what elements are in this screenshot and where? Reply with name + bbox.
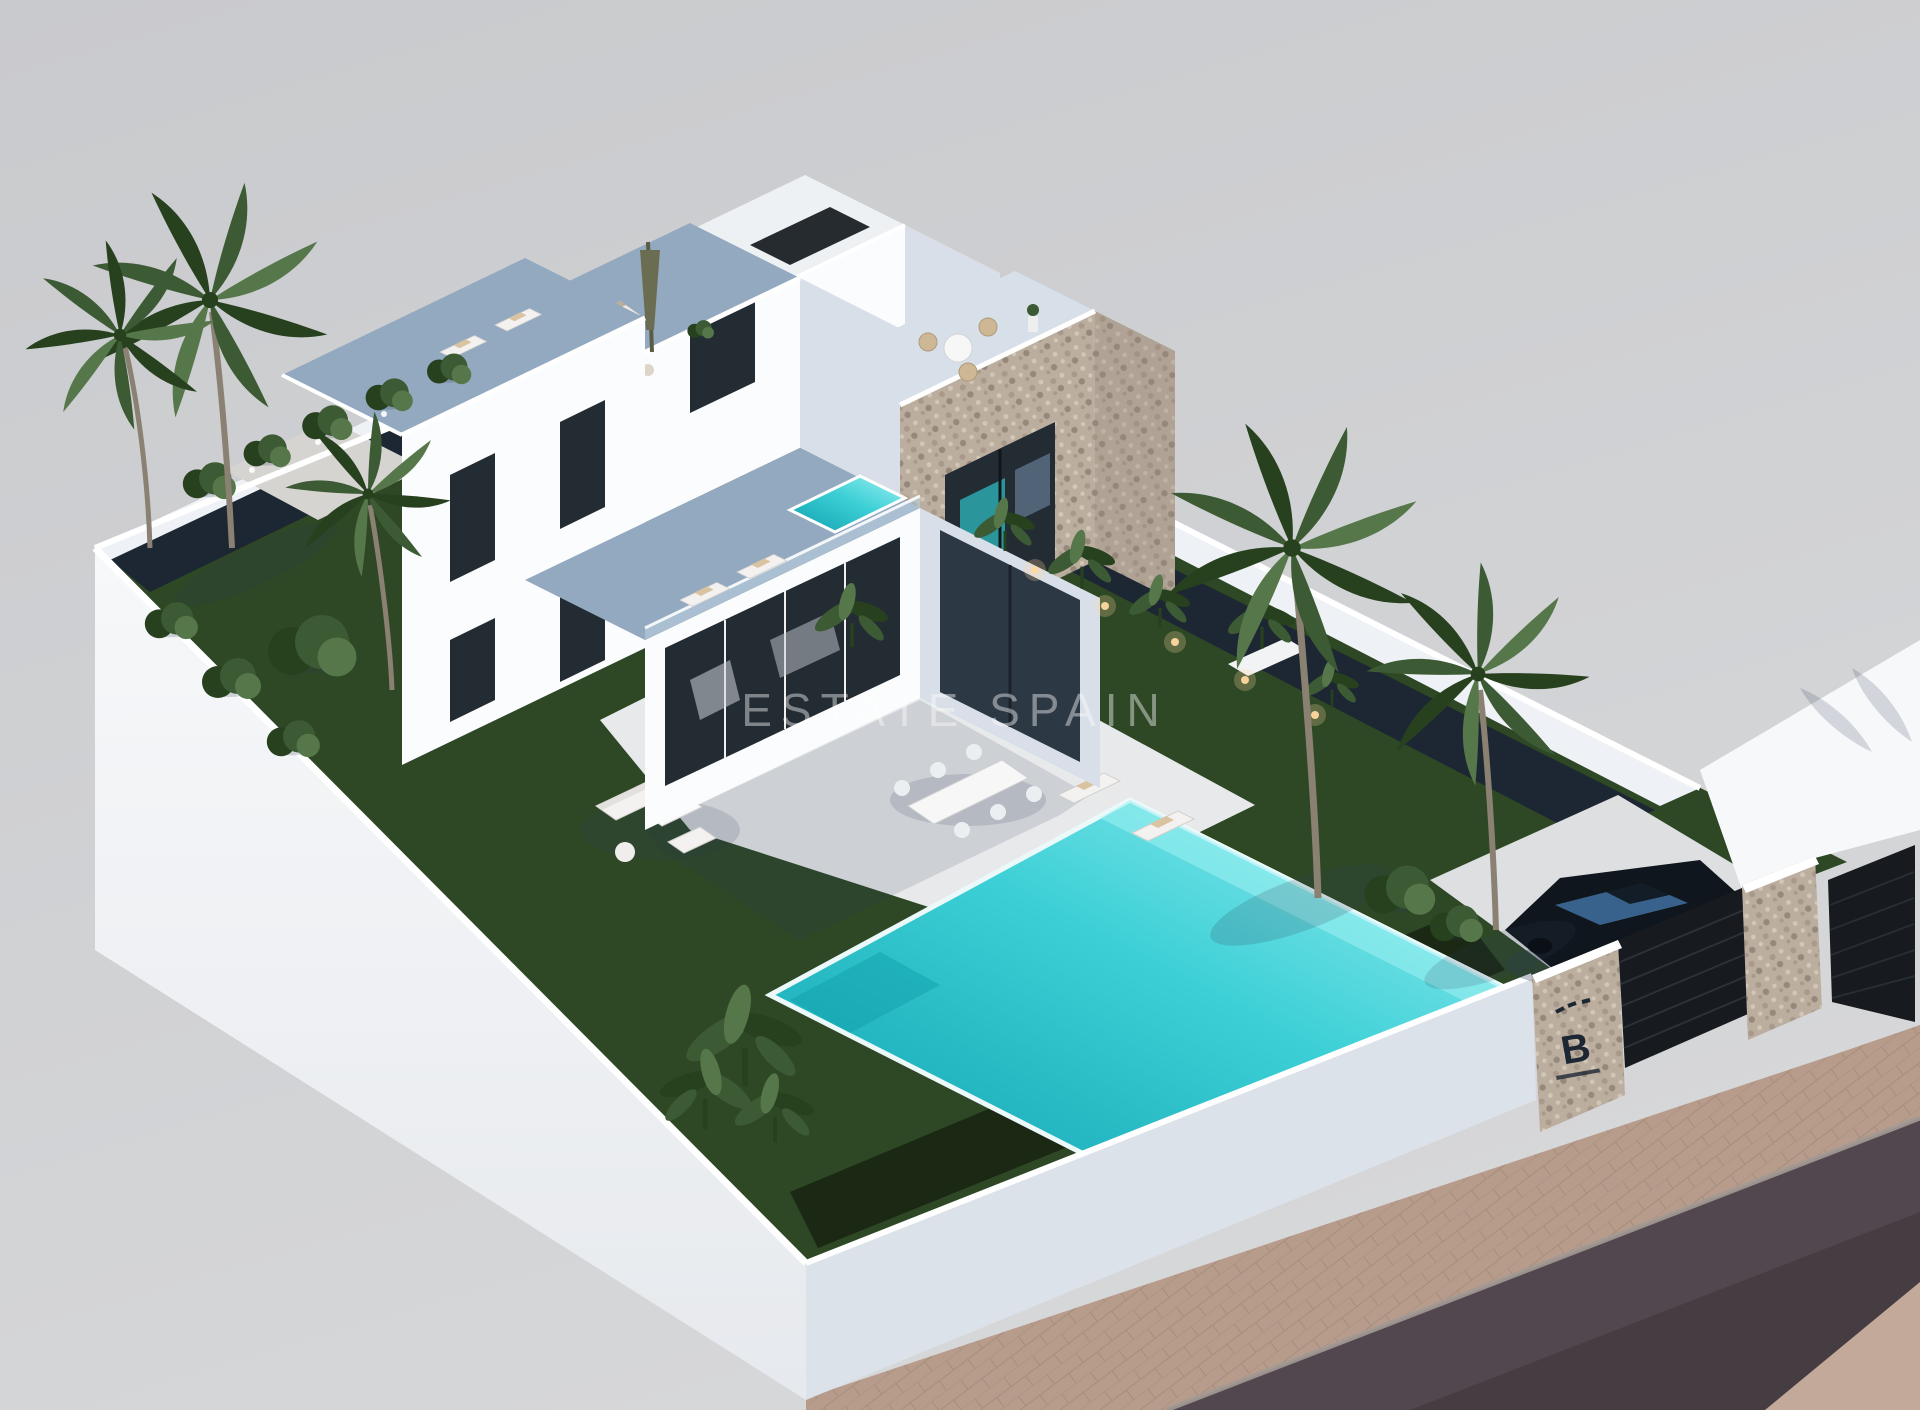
wicker-chair <box>979 318 997 336</box>
dining-chair <box>954 822 970 838</box>
dining-chair <box>894 780 910 796</box>
dining-chair <box>930 762 946 778</box>
garden-uplight <box>315 439 321 445</box>
pouf <box>615 842 635 862</box>
dining-chair <box>1026 786 1042 802</box>
entrance-pillar-right <box>1742 856 1822 1040</box>
watermark-text: ESTATE SPAIN <box>741 684 1169 736</box>
render-canvas: B <box>0 0 1920 1410</box>
dining-chair <box>966 744 982 760</box>
wicker-chair <box>919 333 937 351</box>
garden-uplight <box>381 411 387 417</box>
wicker-chair <box>959 363 977 381</box>
dining-chair <box>990 804 1006 820</box>
torch-light <box>1094 595 1116 617</box>
window <box>450 453 495 582</box>
cactus <box>1027 304 1039 316</box>
rooftop-round-table <box>944 334 972 362</box>
torch-light <box>1164 631 1186 653</box>
window <box>560 400 605 529</box>
garden-uplight <box>249 467 255 473</box>
villa-render: B <box>0 0 1920 1410</box>
torch-light <box>1234 669 1256 691</box>
torch-light <box>1024 559 1046 581</box>
cactus-pot <box>1028 316 1038 332</box>
